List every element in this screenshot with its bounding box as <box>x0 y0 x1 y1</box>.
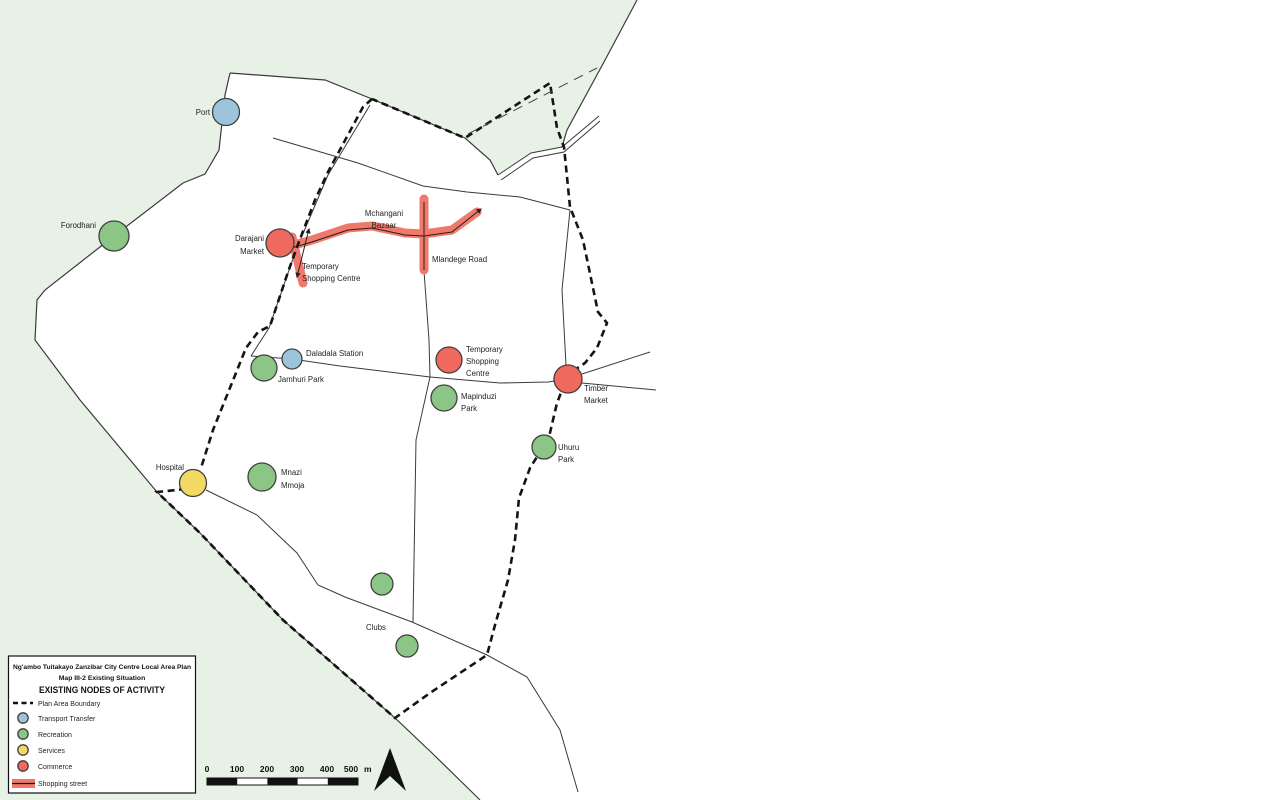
legend-title-line2: Map III-2 Existing Situation <box>59 675 145 682</box>
scale-bar-seg-5 <box>328 778 358 785</box>
scale-tick-0: 0 <box>205 764 210 774</box>
label-temp-centre-east-2: Shopping <box>466 357 499 366</box>
node-clubs-2 <box>396 635 418 657</box>
label-temp-centre-east-1: Temporary <box>466 345 503 354</box>
label-mchangani-2: Bazaar <box>372 221 397 230</box>
node-mnazi-mmoja <box>248 463 276 491</box>
scale-tick-400: 400 <box>320 764 334 774</box>
node-uhuru-park <box>532 435 556 459</box>
node-temporary-shopping-centre <box>436 347 462 373</box>
node-darajani-market <box>266 229 294 257</box>
label-temp-centre-east-3: Centre <box>466 369 489 378</box>
label-temp-centre-west-1: Temporary <box>302 262 339 271</box>
label-mlandege: Mlandege Road <box>432 255 487 264</box>
node-clubs-1 <box>371 573 393 595</box>
node-daladala-station <box>282 349 302 369</box>
legend-swatch-commerce <box>18 761 28 771</box>
scale-tick-300: 300 <box>290 764 304 774</box>
scale-unit: m <box>364 764 372 774</box>
scale-bar-seg-1 <box>207 778 237 785</box>
label-clubs: Clubs <box>366 623 386 632</box>
legend-item-services: Services <box>38 748 65 755</box>
legend: Ng'ambo Tuitakayo Zanzibar City Centre L… <box>9 656 196 793</box>
label-port: Port <box>196 108 211 117</box>
legend-title-line3: EXISTING NODES OF ACTIVITY <box>39 685 165 695</box>
legend-title-line1: Ng'ambo Tuitakayo Zanzibar City Centre L… <box>13 664 191 671</box>
map-canvas: Port Forodhani Darajani Market Temporary… <box>0 0 1280 800</box>
legend-item-transport: Transport Transfer <box>38 716 96 723</box>
scale-bar-seg-3 <box>267 778 297 785</box>
legend-swatch-services <box>18 745 28 755</box>
label-forodhani: Forodhani <box>61 221 96 230</box>
legend-item-shopping-street: Shopping street <box>38 781 87 788</box>
legend-item-commerce: Commerce <box>38 764 72 771</box>
node-hospital <box>180 470 207 497</box>
label-uhuru-1: Uhuru <box>558 443 579 452</box>
node-mapinduzi-park <box>431 385 457 411</box>
label-darajani-2: Market <box>240 247 265 256</box>
node-timber-market <box>554 365 582 393</box>
label-jamhuri: Jamhuri Park <box>278 375 324 384</box>
label-timber-1: Timber <box>584 384 608 393</box>
label-timber-2: Market <box>584 396 609 405</box>
label-uhuru-2: Park <box>558 455 574 464</box>
legend-swatch-transport <box>18 713 28 723</box>
node-forodhani <box>99 221 129 251</box>
label-darajani-1: Darajani <box>235 234 264 243</box>
legend-swatch-recreation <box>18 729 28 739</box>
label-daladala: Daladala Station <box>306 349 363 358</box>
label-mchangani-1: Mchangani <box>365 209 403 218</box>
node-port <box>213 99 240 126</box>
scale-tick-100: 100 <box>230 764 244 774</box>
scale-tick-500: 500 <box>344 764 358 774</box>
legend-item-plan-boundary: Plan Area Boundary <box>38 701 101 708</box>
label-hospital: Hospital <box>156 463 184 472</box>
node-jamhuri-park <box>251 355 277 381</box>
label-temp-centre-west-2: Shopping Centre <box>302 274 361 283</box>
label-mapinduzi-2: Park <box>461 404 477 413</box>
legend-item-recreation: Recreation <box>38 732 72 739</box>
label-mapinduzi-1: Mapinduzi <box>461 392 497 401</box>
scale-tick-200: 200 <box>260 764 274 774</box>
label-mnazi-2: Mmoja <box>281 481 305 490</box>
label-mnazi-1: Mnazi <box>281 468 302 477</box>
